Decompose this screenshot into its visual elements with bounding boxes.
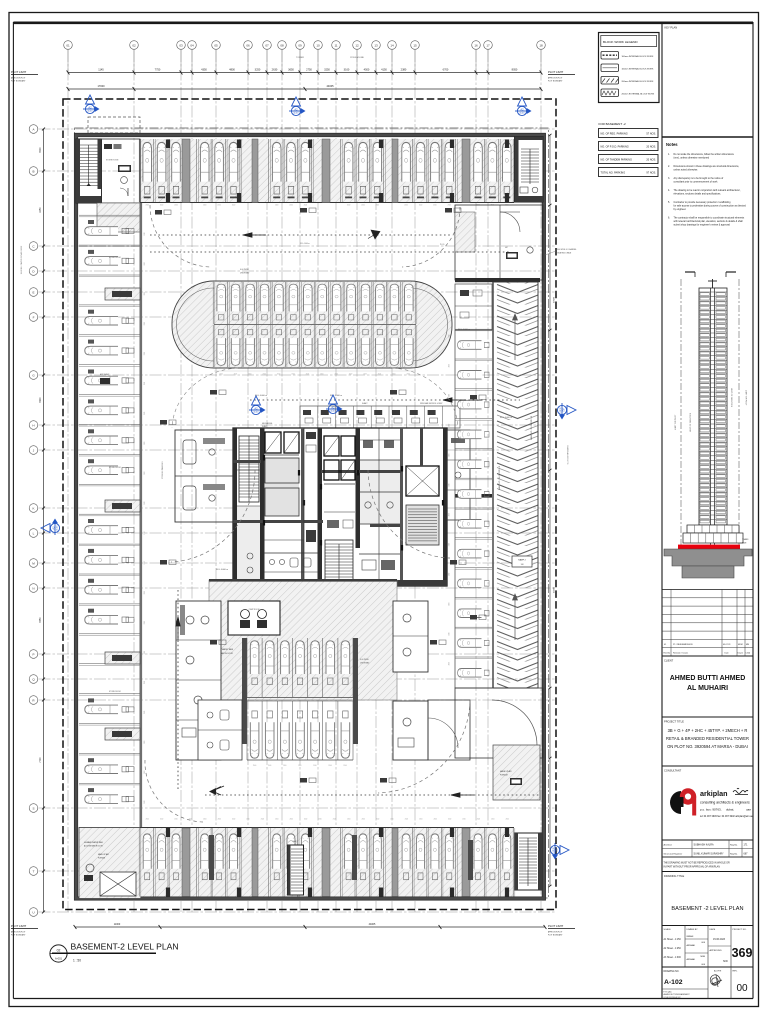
svg-text:2500: 2500 (263, 374, 267, 376)
svg-text:2500: 2500 (283, 765, 287, 767)
svg-text:10: 10 (316, 44, 320, 48)
svg-text:2500: 2500 (144, 621, 146, 624)
svg-text:2500: 2500 (477, 819, 480, 821)
svg-text:A2: A2 (555, 848, 559, 852)
svg-text:F: F (33, 315, 35, 319)
svg-text:3B + G + 4P + 2HC + 45TYP. + 2: 3B + G + 4P + 2HC + 45TYP. + 2MECH + R (668, 728, 748, 733)
svg-text:RETAIL & BRANDED RESIDENTIAL T: RETAIL & BRANDED RESIDENTIAL TOWER (666, 736, 749, 741)
svg-text:A2: A2 (562, 408, 566, 412)
svg-text:2500: 2500 (290, 819, 293, 821)
svg-text:2500: 2500 (289, 205, 293, 207)
svg-text:2500: 2500 (347, 819, 350, 821)
svg-text:Date: Date (725, 652, 729, 655)
svg-text:100mm INTERNAL BLOCK WORK: 100mm INTERNAL BLOCK WORK (622, 55, 655, 58)
svg-text:Rev.No: Rev.No (664, 653, 671, 655)
svg-text:2500: 2500 (144, 262, 146, 265)
svg-text:MAKE UP AIR: MAKE UP AIR (500, 770, 512, 773)
svg-text:20 NOS.: 20 NOS. (646, 146, 656, 149)
svg-text:2500: 2500 (160, 819, 163, 821)
svg-text:11000: 11000 (114, 923, 121, 926)
svg-text:2400: 2400 (449, 424, 451, 427)
svg-text:LIMIT OF PLOT: LIMIT OF PLOT (675, 414, 677, 430)
svg-text:24200: 24200 (552, 587, 554, 594)
svg-text:2500: 2500 (335, 374, 339, 376)
svg-text:AL MUHAIRI: AL MUHAIRI (687, 685, 728, 692)
svg-text:A2: A2 (51, 526, 55, 530)
svg-text:2630: 2630 (272, 67, 278, 71)
svg-text:300 WIDE GI CHANNEL: 300 WIDE GI CHANNEL (557, 248, 577, 251)
svg-text:LIMIT OF SERVICES: LIMIT OF SERVICES (730, 388, 732, 408)
svg-text:2500: 2500 (506, 819, 509, 821)
svg-text:2500: 2500 (144, 232, 146, 235)
svg-text:by engineer.: by engineer. (674, 208, 687, 211)
svg-text:16: 16 (474, 44, 478, 48)
svg-text:4500: 4500 (364, 67, 370, 71)
svg-text:RAMP UP / DN SLOPE 1:8: RAMP UP / DN SLOPE 1:8 (530, 415, 533, 440)
svg-text:A2: A2 (88, 105, 92, 109)
svg-text:BLOCK WORK LEGEND: BLOCK WORK LEGEND (603, 40, 638, 44)
svg-text:2500: 2500 (333, 819, 336, 821)
svg-text:PROJECT TITLE: PROJECT TITLE (664, 720, 684, 724)
svg-text:2500: 2500 (232, 819, 235, 821)
svg-text:44005: 44005 (326, 84, 334, 88)
svg-text:DRAWING NO.: DRAWING NO. (664, 970, 680, 973)
svg-text:2400: 2400 (449, 483, 451, 486)
svg-text:Drawn: Drawn (738, 652, 743, 655)
svg-text:2400: 2400 (449, 334, 451, 337)
svg-text:6.00 WIDE: 6.00 WIDE (360, 659, 369, 661)
svg-text:submit shop drawings for engin: submit shop drawings for engineer's revi… (674, 224, 731, 227)
svg-text:APPROVED: APPROVED (710, 949, 723, 952)
svg-text:1 : 50: 1 : 50 (73, 959, 81, 963)
svg-text:2500: 2500 (144, 591, 146, 594)
svg-text:06: 06 (246, 44, 250, 48)
svg-text:2400: 2400 (449, 453, 451, 456)
svg-text:2.: 2. (668, 165, 670, 168)
svg-text:4.: 4. (668, 189, 670, 192)
svg-text:A2: A2 (520, 107, 524, 111)
svg-text:2500: 2500 (144, 471, 146, 474)
svg-text:2500: 2500 (291, 374, 295, 376)
svg-text:A: A (32, 127, 34, 131)
svg-text:AFFECTION PLOT: AFFECTION PLOT (11, 77, 25, 80)
svg-text:U: U (32, 910, 34, 914)
svg-text:2500: 2500 (328, 765, 332, 767)
svg-text:AHMED BUTTI AHMED: AHMED BUTTI AHMED (670, 675, 746, 682)
svg-text:02: 02 (132, 44, 136, 48)
svg-text:Do not scale the dimensions, f: Do not scale the dimensions, follow the … (674, 153, 735, 156)
svg-text:2500: 2500 (448, 819, 451, 821)
svg-text:P: P (32, 652, 34, 656)
svg-text:2500: 2500 (160, 205, 164, 207)
svg-text:57 NOS.: 57 NOS. (646, 133, 656, 136)
svg-text:GRATING DRAIN: GRATING DRAIN (557, 252, 572, 255)
svg-text:THIS DRAWING MUST NOT BE REPRO: THIS DRAWING MUST NOT BE REPRODUCED IN W… (664, 862, 731, 865)
svg-text:2500: 2500 (275, 205, 279, 207)
svg-text:2500: 2500 (248, 374, 252, 376)
svg-text:CLIENT: CLIENT (664, 659, 674, 663)
svg-text:9050: 9050 (40, 207, 42, 213)
svg-text:2500: 2500 (146, 205, 150, 207)
svg-text:PLOT BOUNDARY: PLOT BOUNDARY (548, 934, 563, 937)
svg-text:ON PLOT NO. 3920594 AT MARSA -: ON PLOT NO. 3920594 AT MARSA - DUBAI (667, 744, 748, 749)
svg-text:2400: 2400 (449, 632, 451, 635)
svg-text:2500: 2500 (144, 711, 146, 714)
svg-text:04: 04 (190, 44, 194, 48)
svg-text:2500: 2500 (144, 651, 146, 654)
svg-text:2500: 2500 (203, 819, 206, 821)
svg-text:2400: 2400 (449, 543, 451, 546)
svg-text:Reg.No.: Reg.No. (730, 845, 738, 847)
svg-text:A-301: A-301 (330, 410, 335, 413)
svg-text:15: 15 (413, 44, 417, 48)
svg-text:AFFECTION PLOT: AFFECTION PLOT (548, 77, 562, 80)
svg-text:14500: 14500 (552, 297, 554, 304)
svg-text:STORE ROOM: STORE ROOM (109, 257, 121, 259)
svg-text:2500: 2500 (144, 770, 146, 773)
svg-text:ARP SHAFT: ARP SHAFT (100, 373, 109, 376)
svg-text:2500: 2500 (419, 205, 423, 207)
svg-text:2500: 2500 (144, 531, 146, 534)
svg-text:PLOT BOUNDARY: PLOT BOUNDARY (11, 934, 26, 937)
svg-text:F.F.L 4.000 m: F.F.L 4.000 m (216, 569, 228, 571)
svg-text:A1 Sheet - 1:150: A1 Sheet - 1:150 (664, 938, 682, 941)
svg-text:STORE ROOM: STORE ROOM (109, 691, 121, 693)
svg-text:667: 667 (744, 853, 749, 856)
svg-text:3.: 3. (668, 177, 670, 180)
svg-text:PLOT LIMIT: PLOT LIMIT (548, 70, 563, 74)
svg-text:08: 08 (280, 44, 284, 48)
svg-text:TRANS: TRANS (742, 538, 749, 541)
svg-text:elevations, sections details a: elevations, sections details and specifi… (674, 193, 722, 196)
svg-text:02: 02 (57, 949, 61, 953)
svg-text:2500: 2500 (376, 819, 379, 821)
svg-text:XXL 4.000 m: XXL 4.000 m (300, 243, 310, 245)
svg-text:MOM: MOM (738, 644, 743, 646)
svg-text:SOK: SOK (723, 960, 728, 963)
svg-text:unless noted otherwise.: unless noted otherwise. (674, 169, 699, 172)
svg-text:8050: 8050 (512, 67, 518, 71)
svg-text:2500: 2500 (144, 412, 146, 415)
svg-text:PLENUM: PLENUM (500, 775, 508, 777)
svg-text:2500: 2500 (144, 322, 146, 325)
svg-text:BASEMENT-2 LEVEL PLAN: BASEMENT-2 LEVEL PLAN (71, 942, 179, 952)
svg-text:4150: 4150 (381, 67, 387, 71)
svg-text:A-102: A-102 (664, 979, 683, 986)
svg-text:Revision / Issues: Revision / Issues (673, 653, 688, 655)
svg-text:A-301: A-301 (558, 407, 561, 412)
svg-text:P.O.D: P.O.D (440, 244, 445, 246)
svg-text:A2: A2 (331, 405, 335, 409)
svg-text:2750: 2750 (306, 67, 312, 71)
svg-text:DRAWING TITLE: DRAWING TITLE (664, 874, 684, 878)
svg-text:09: 09 (298, 44, 302, 48)
svg-text:ALLPER: ALLPER (714, 970, 722, 973)
svg-text:2500: 2500 (144, 442, 146, 445)
svg-text:2500: 2500 (419, 819, 422, 821)
svg-text:consulting architects & engine: consulting architects & engineers (700, 801, 750, 805)
svg-text:2500: 2500 (298, 765, 302, 767)
svg-text:STORE ROOM: STORE ROOM (109, 467, 121, 469)
svg-text:2500: 2500 (404, 205, 408, 207)
svg-text:2500: 2500 (405, 819, 408, 821)
svg-text:20 NOS.: 20 NOS. (646, 159, 656, 162)
svg-text:2500: 2500 (144, 681, 146, 684)
svg-text:STORE ROOM: STORE ROOM (106, 160, 119, 162)
svg-text:2500: 2500 (462, 819, 465, 821)
svg-text:PLENUM: PLENUM (98, 858, 106, 860)
svg-text:A-301: A-301 (87, 110, 92, 113)
svg-text:H: H (32, 423, 34, 427)
svg-text:2400: 2400 (449, 364, 451, 367)
svg-text:PODIUM LINE: PODIUM LINE (350, 57, 364, 59)
svg-text:A-301: A-301 (253, 411, 258, 414)
svg-text:2500: 2500 (144, 741, 146, 744)
svg-text:2500: 2500 (349, 374, 353, 376)
svg-text:2500: 2500 (219, 374, 223, 376)
svg-text:2400: 2400 (449, 513, 451, 516)
svg-text:with relevant architectural pl: with relevant architectural plan, elevat… (674, 220, 744, 223)
svg-text:tel: 04 397 3933 fax: 04 39: tel: 04 397 3933 fax: 04 397 3932 arkipl… (700, 815, 754, 818)
svg-text:2500: 2500 (304, 205, 308, 207)
svg-text:LIMIT OF SERVICES: LIMIT OF SERVICES (690, 412, 692, 432)
svg-text:4350: 4350 (201, 67, 207, 71)
svg-text:IMRAN: IMRAN (687, 935, 694, 938)
svg-text:Structural Engineer: Structural Engineer (664, 853, 683, 856)
svg-text:PLOT LIMIT: PLOT LIMIT (11, 924, 26, 928)
svg-text:NO. OF REG. PARKING: NO. OF REG. PARKING (601, 133, 628, 136)
svg-text:2500: 2500 (390, 819, 393, 821)
svg-text:RAMP UP / DN SLOPE 1:8: RAMP UP / DN SLOPE 1:8 (498, 465, 501, 490)
svg-text:2500: 2500 (320, 374, 324, 376)
svg-text:Notes: Notes (666, 142, 678, 147)
svg-text:for safe access to pedestrian: for safe access to pedestrian during cou… (674, 205, 747, 208)
svg-text:ARSHAD: ARSHAD (687, 944, 696, 947)
svg-text:PROJECT NO.: PROJECT NO. (733, 929, 747, 931)
svg-text:Any discrepancy is to be broug: Any discrepancy is to be brought to the … (674, 177, 724, 180)
svg-text:PLOT LIMIT: PLOT LIMIT (548, 924, 563, 928)
svg-text:200mm INTERNAL BLOCK WORK: 200mm INTERNAL BLOCK WORK (622, 80, 655, 83)
svg-text:FIRE MAN/ SERVICE LOBBY: FIRE MAN/ SERVICE LOBBY (420, 402, 443, 405)
svg-text:2500: 2500 (144, 352, 146, 355)
svg-text:DRIVEWAY: DRIVEWAY (240, 272, 250, 275)
svg-text:6.00 WIDE: 6.00 WIDE (240, 269, 249, 271)
svg-text:A2: A2 (254, 406, 258, 410)
svg-text:The drawing to be read in conj: The drawing to be read in conjunction wi… (674, 189, 742, 192)
svg-text:97 NOS.: 97 NOS. (646, 172, 656, 175)
svg-text:1.: 1. (668, 153, 670, 156)
svg-text:PLOT BOUNDARY: PLOT BOUNDARY (548, 80, 563, 83)
svg-text:17000: 17000 (97, 84, 105, 88)
svg-text:1145: 1145 (98, 67, 104, 71)
svg-text:6700: 6700 (443, 67, 449, 71)
svg-text:Reg.No.: Reg.No. (730, 854, 738, 856)
svg-text:05: 05 (214, 44, 218, 48)
svg-text:F.T.S (A1): F.T.S (A1) (664, 990, 672, 993)
svg-text:171: 171 (744, 844, 749, 847)
svg-text:A-301: A-301 (56, 525, 59, 530)
svg-text:2500: 2500 (491, 819, 494, 821)
svg-text:2500: 2500 (144, 382, 146, 385)
svg-text:PLOT LIMIT: PLOT LIMIT (11, 70, 26, 74)
svg-text:2500: 2500 (232, 205, 236, 207)
svg-text:2500: 2500 (144, 800, 146, 803)
svg-text:Contractor to provide necessar: Contractor to provide necessary protecti… (674, 201, 732, 204)
svg-text:NO. OF TANDEM PARKING: NO. OF TANDEM PARKING (601, 159, 632, 162)
svg-text:8350: 8350 (40, 617, 42, 623)
svg-text:44005: 44005 (369, 923, 376, 926)
svg-text:200mm EXTERNAL BLOCK WORK: 200mm EXTERNAL BLOCK WORK (622, 92, 655, 95)
svg-text:2500: 2500 (146, 819, 149, 821)
svg-text:2500: 2500 (253, 765, 257, 767)
svg-text:13: 13 (374, 44, 378, 48)
svg-text:2500: 2500 (189, 819, 192, 821)
svg-text:A-301: A-301 (519, 112, 524, 115)
svg-text:2400: 2400 (449, 662, 451, 665)
svg-text:AFFECTION PLOT: AFFECTION PLOT (548, 931, 562, 934)
svg-text:2500: 2500 (218, 819, 221, 821)
svg-text:p.o. box: 90763,: p.o. box: 90763, (700, 808, 722, 812)
svg-text:3160: 3160 (344, 67, 350, 71)
svg-text:15.06.2023: 15.06.2023 (713, 938, 726, 941)
svg-text:2500: 2500 (144, 501, 146, 504)
svg-text:2500: 2500 (448, 205, 452, 207)
svg-text:A2: A2 (294, 107, 298, 111)
svg-text:(mm), unless otherwise mentio: (mm), unless otherwise mentioned (674, 157, 710, 160)
svg-text:MAKE UP AIR: MAKE UP AIR (98, 853, 110, 856)
svg-text:2500: 2500 (277, 374, 281, 376)
svg-text:TOTAL NO. PARKING: TOTAL NO. PARKING (601, 172, 626, 175)
svg-text:T: T (33, 869, 35, 873)
svg-text:F.F.L 4.000 m: F.F.L 4.000 m (500, 417, 512, 419)
svg-text:2500: 2500 (144, 292, 146, 295)
svg-text:2500: 2500 (407, 374, 411, 376)
svg-text:2500: 2500 (362, 819, 365, 821)
svg-text:arkiplan: arkiplan (700, 789, 728, 798)
svg-text:2500: 2500 (144, 561, 146, 564)
svg-text:DRAWN BY: DRAWN BY (687, 928, 699, 931)
svg-text:SHAFT: SHAFT (362, 402, 368, 405)
svg-text:Chkd: Chkd (746, 653, 750, 655)
svg-text:E: E (32, 290, 34, 294)
svg-text:F.F.L 4.000 m: F.F.L 4.000 m (458, 329, 470, 331)
svg-text:2500: 2500 (304, 819, 307, 821)
svg-text:2500: 2500 (347, 205, 351, 207)
svg-text:ARSHAD: ARSHAD (687, 958, 696, 961)
svg-text:consultant prior to commenceme: consultant prior to commencement of work (674, 181, 719, 184)
svg-text:2500: 2500 (343, 765, 347, 767)
svg-text:00: 00 (736, 983, 748, 994)
svg-text:SUNIL KUMAR SURASHRY: SUNIL KUMAR SURASHRY (694, 853, 725, 856)
svg-text:7750: 7750 (155, 67, 161, 71)
svg-text:SIDE: SIDE (742, 542, 747, 544)
svg-text:5.: 5. (668, 201, 670, 204)
svg-text:03: 03 (179, 44, 183, 48)
svg-text:2500: 2500 (363, 374, 367, 376)
svg-text:7700: 7700 (40, 757, 42, 763)
svg-text:Architect: Architect (664, 844, 673, 847)
svg-text:PODIUM PARKING: PODIUM PARKING (161, 461, 164, 479)
svg-text:AFFECTION PLOT: AFFECTION PLOT (11, 931, 25, 934)
svg-text:2500: 2500 (268, 765, 272, 767)
svg-text:2500: 2500 (433, 205, 437, 207)
svg-text:LEVELS/DWG/A-102: LEVELS/DWG/A-102 (664, 996, 681, 999)
svg-text:uae: uae (746, 808, 751, 812)
svg-text:3250: 3250 (324, 67, 330, 71)
svg-text:IN PART WITHOUT PRIOR APPROVAL: IN PART WITHOUT PRIOR APPROVAL OF ARKIPL… (664, 866, 721, 869)
svg-text:PLOT BOUNDARY: PLOT BOUNDARY (11, 80, 26, 83)
svg-text:A2 Sheet - 1:250: A2 Sheet - 1:250 (664, 947, 682, 950)
svg-text:The contractor shall be respon: The contractor shall be responsible to c… (674, 217, 745, 220)
svg-text:14: 14 (390, 44, 394, 48)
svg-text:SUBHASH KALRA: SUBHASH KALRA (694, 844, 714, 847)
svg-text:2500: 2500 (306, 374, 310, 376)
svg-text:8200: 8200 (40, 397, 42, 403)
svg-text:NO. OF P.O.D. PARKING: NO. OF P.O.D. PARKING (601, 146, 629, 149)
svg-text:MARINA HEIGHTS: MARINA HEIGHTS (566, 446, 569, 465)
svg-text:2500: 2500 (392, 374, 396, 376)
svg-text:ACCESS HATCH DOOR: ACCESS HATCH DOOR (84, 845, 103, 848)
svg-text:01: 01 (66, 44, 70, 48)
svg-text:12: 12 (355, 44, 359, 48)
svg-text:05.07.23: 05.07.23 (723, 644, 730, 646)
svg-text:FOR BASEMENT -2: FOR BASEMENT -2 (599, 122, 626, 126)
svg-text:2500: 2500 (217, 205, 221, 207)
svg-text:2500: 2500 (275, 819, 278, 821)
svg-text:2500: 2500 (434, 819, 437, 821)
svg-text:N: N (32, 586, 34, 590)
svg-text:2400: 2400 (449, 602, 451, 605)
svg-text:KEY PLAN: KEY PLAN (665, 26, 678, 30)
svg-text:2500: 2500 (378, 374, 382, 376)
svg-text:REV.: REV. (733, 971, 738, 973)
svg-text:2500: 2500 (361, 205, 365, 207)
svg-text:CONSULTANT: CONSULTANT (664, 769, 682, 773)
svg-text:6.: 6. (668, 217, 670, 220)
svg-text:A-001: A-001 (55, 957, 62, 961)
svg-text:B: B (32, 169, 34, 173)
svg-text:2500: 2500 (246, 819, 249, 821)
svg-text:2400: 2400 (449, 394, 451, 397)
svg-text:07: 07 (265, 44, 269, 48)
svg-text:4800: 4800 (229, 67, 235, 71)
svg-text:Dimensions shown in these draw: Dimensions shown in these drawings are s… (674, 165, 740, 168)
svg-text:2500: 2500 (203, 205, 207, 207)
svg-text:SHEIKH ZAYED ROAD SIDE: SHEIKH ZAYED ROAD SIDE (20, 245, 23, 274)
svg-text:A-301: A-301 (293, 112, 298, 115)
svg-text:100mm INTERNAL BLOCK WORK: 100mm INTERNAL BLOCK WORK (622, 67, 655, 70)
svg-text:A-301: A-301 (551, 847, 554, 852)
svg-text:18: 18 (539, 44, 543, 48)
svg-text:2500: 2500 (261, 819, 264, 821)
svg-text:PUMP ROOM: PUMP ROOM (249, 609, 260, 611)
svg-text:A3 Sheet - 1:300: A3 Sheet - 1:300 (664, 956, 682, 959)
svg-text:8000: 8000 (40, 147, 42, 153)
svg-text:P1 / RESUBMISSION: P1 / RESUBMISSION (673, 644, 693, 646)
svg-text:DATE: DATE (710, 928, 716, 931)
svg-text:dubai,: dubai, (726, 808, 734, 812)
svg-text:TOWER: TOWER (296, 57, 304, 59)
svg-text:369: 369 (732, 946, 753, 960)
svg-text:11: 11 (334, 44, 337, 48)
svg-text:BASEMENT -2 LEVEL PLAN: BASEMENT -2 LEVEL PLAN (671, 906, 743, 912)
svg-text:17: 17 (486, 44, 490, 48)
svg-text:3650: 3650 (288, 67, 294, 71)
svg-text:AHMED BUTTI/369/BASEMENT: AHMED BUTTI/369/BASEMENT (664, 993, 691, 996)
svg-text:2500: 2500 (318, 819, 321, 821)
svg-text:2500: 2500 (234, 374, 238, 376)
svg-text:S: S (32, 806, 34, 810)
